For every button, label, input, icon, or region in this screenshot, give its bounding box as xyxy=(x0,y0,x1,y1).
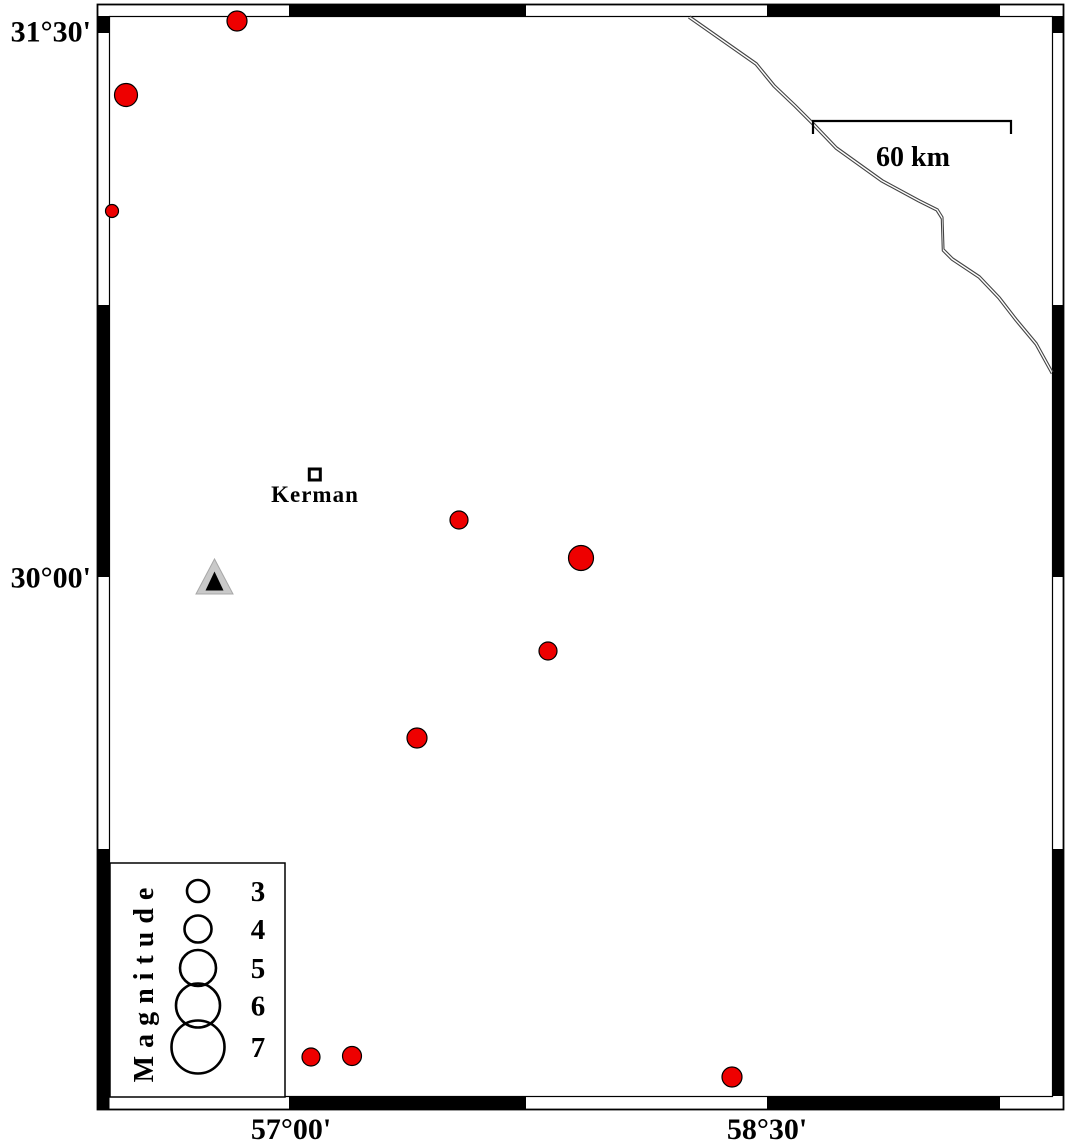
frame-band-bottom-black xyxy=(289,1097,526,1109)
frame-band-right-black xyxy=(1053,16,1063,33)
x-axis-tick-label: 58°30' xyxy=(727,1113,807,1146)
legend-magnitude-label: 4 xyxy=(251,914,266,946)
earthquake-marker xyxy=(450,511,468,529)
scale-bar-label: 60 km xyxy=(876,142,950,173)
city-label: Kerman xyxy=(271,482,359,507)
earthquake-marker xyxy=(569,546,594,571)
earthquake-marker xyxy=(722,1067,742,1087)
earthquake-marker xyxy=(227,11,247,31)
earthquake-marker xyxy=(343,1047,362,1066)
earthquake-marker xyxy=(302,1048,320,1066)
frame-band-right-black xyxy=(1053,305,1063,577)
earthquake-marker xyxy=(106,205,119,218)
frame-band-right-black xyxy=(1053,849,1063,1096)
legend-title: Magnitude xyxy=(129,880,160,1083)
frame-band-top-black xyxy=(767,5,1000,17)
frame-band-left-black xyxy=(98,16,110,33)
frame-band-left-black xyxy=(98,305,110,577)
y-axis-tick-label: 30°00' xyxy=(11,562,91,595)
city-square xyxy=(309,469,320,480)
legend-magnitude-label: 5 xyxy=(251,953,266,985)
legend-magnitude-label: 6 xyxy=(251,991,266,1023)
frame-band-left-black xyxy=(98,849,110,1109)
earthquake-marker xyxy=(115,84,138,107)
map-canvas: 60 km Kerman 31°30'30°00' 57°00'58°30' M… xyxy=(0,0,1066,1146)
earthquake-marker xyxy=(407,728,427,748)
frame-band-bottom-black xyxy=(767,1097,1000,1109)
y-axis-tick-label: 31°30' xyxy=(11,16,91,49)
magnitude-legend: Magnitude 34567 xyxy=(110,863,285,1097)
legend-magnitude-label: 3 xyxy=(251,876,266,908)
frame-band-top-black xyxy=(289,5,526,17)
seismicity-map: 60 km Kerman 31°30'30°00' 57°00'58°30' M… xyxy=(0,0,1066,1146)
legend-magnitude-label: 7 xyxy=(251,1032,266,1064)
x-axis-tick-label: 57°00' xyxy=(251,1113,331,1146)
city-square-marker xyxy=(309,469,320,480)
earthquake-marker xyxy=(539,642,557,660)
